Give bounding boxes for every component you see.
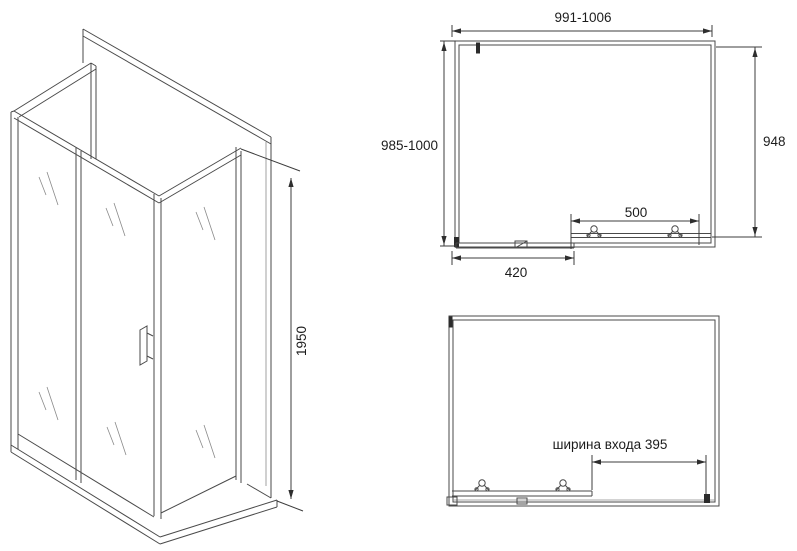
door-panel-dimension-lines: [452, 251, 574, 265]
roller-icon: [668, 226, 682, 237]
entrance-width-dimension: ширина входа 395: [553, 437, 706, 494]
depth-dimension: 985-1000: [381, 41, 456, 246]
sliding-door-open: [447, 491, 592, 505]
roller-icon: [556, 480, 570, 491]
top-plan-view: 991-1006 985-1000 948 500 420: [381, 10, 786, 280]
plan-outer-wall: [455, 41, 715, 247]
door-panel-dimension: 420: [452, 251, 574, 280]
side-panel-dimension-lines: [712, 47, 762, 237]
door-handle: [140, 326, 153, 365]
width-dimension-lines: [452, 25, 712, 37]
wall-profile-mark: [704, 494, 710, 503]
open-door-plan-view: ширина входа 395: [447, 316, 719, 506]
shower-tray: [11, 445, 277, 544]
depth-dimension-lines: [440, 41, 456, 246]
side-panel-dimension: 948: [712, 47, 786, 237]
width-dimension-label: 991-1006: [554, 10, 611, 25]
drawing-canvas: 1950 991-1006 985-1000: [0, 0, 797, 551]
roller-icon: [587, 226, 601, 237]
plan-inner-wall: [459, 45, 711, 243]
entrance-width-dimension-label: ширина входа 395: [553, 437, 668, 452]
wall-profile-mark: [476, 43, 480, 54]
depth-dimension-label: 985-1000: [381, 138, 438, 153]
fixed-panel-dimension: 500: [571, 205, 699, 249]
technical-drawing-page: 1950 991-1006 985-1000: [0, 0, 797, 551]
plan-outer-wall: [449, 316, 719, 506]
fixed-panel-dimension-label: 500: [625, 205, 648, 220]
width-dimension: 991-1006: [452, 10, 712, 37]
back-corner-post: [91, 63, 96, 159]
wall-profile-mark: [449, 317, 453, 328]
entrance-width-dimension-lines: [592, 455, 706, 494]
back-wall-panel: [83, 29, 271, 498]
enclosure-frame: [11, 63, 241, 519]
side-panel-dimension-label: 948: [763, 134, 786, 149]
height-dimension-label: 1950: [294, 326, 309, 356]
glass-reflection-marks: [39, 172, 215, 458]
height-dimension: 1950: [241, 149, 309, 511]
roller-icon: [475, 480, 489, 491]
fixed-panel-and-door-track: [456, 234, 711, 249]
iso-view: 1950: [11, 29, 309, 544]
door-panel-dimension-label: 420: [505, 265, 528, 280]
plan-inner-wall: [453, 320, 715, 502]
